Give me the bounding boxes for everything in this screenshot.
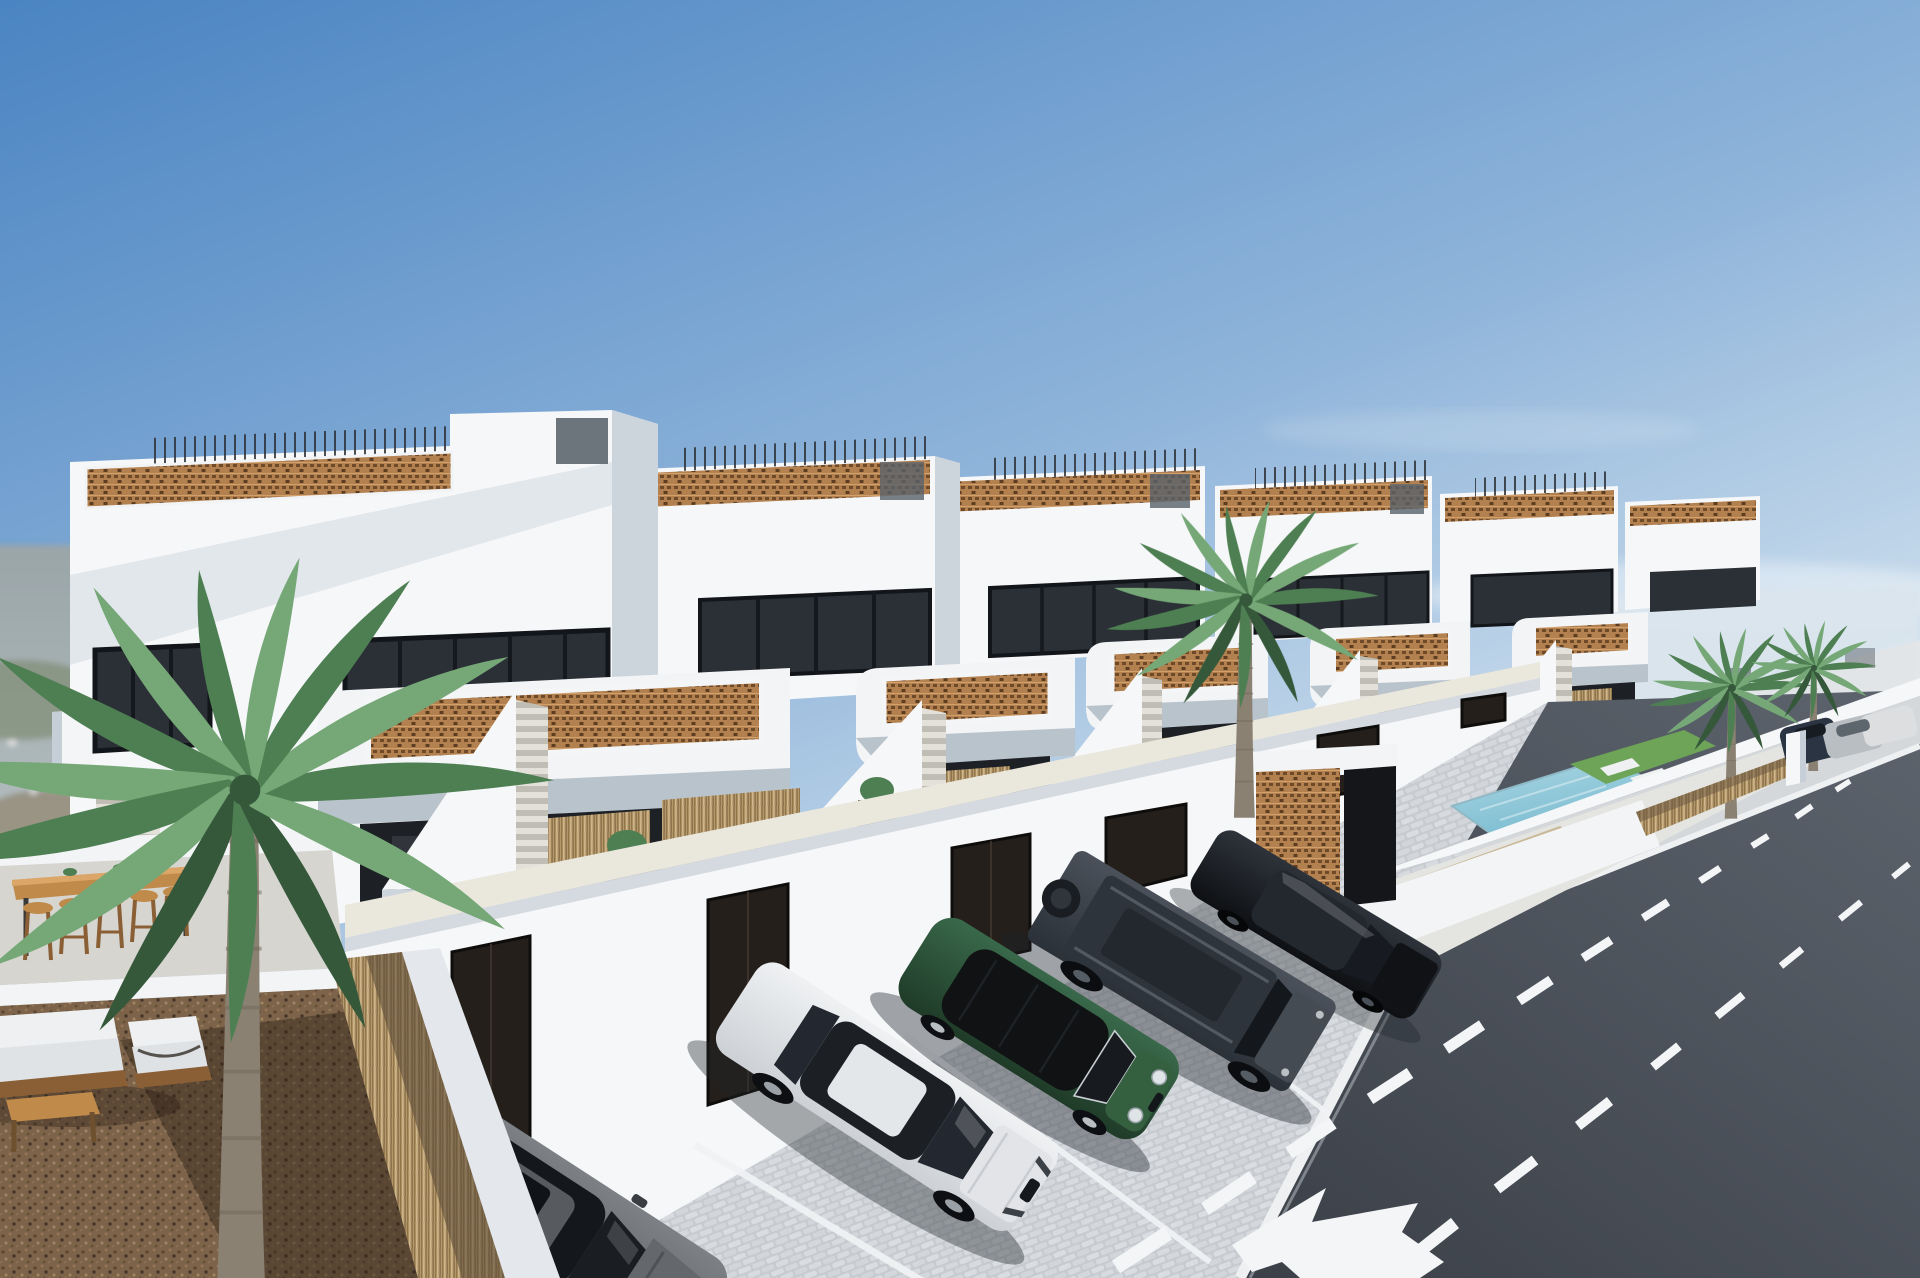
garage-door-6 bbox=[1462, 694, 1505, 727]
roof-panel bbox=[1150, 474, 1190, 508]
window bbox=[1650, 567, 1756, 612]
roof-panel bbox=[556, 418, 608, 464]
scene-canvas bbox=[0, 0, 1920, 1278]
roof-panel bbox=[880, 462, 924, 500]
gate-pillar bbox=[1786, 730, 1806, 786]
roof-panel bbox=[1390, 484, 1424, 514]
render-image bbox=[0, 0, 1920, 1278]
